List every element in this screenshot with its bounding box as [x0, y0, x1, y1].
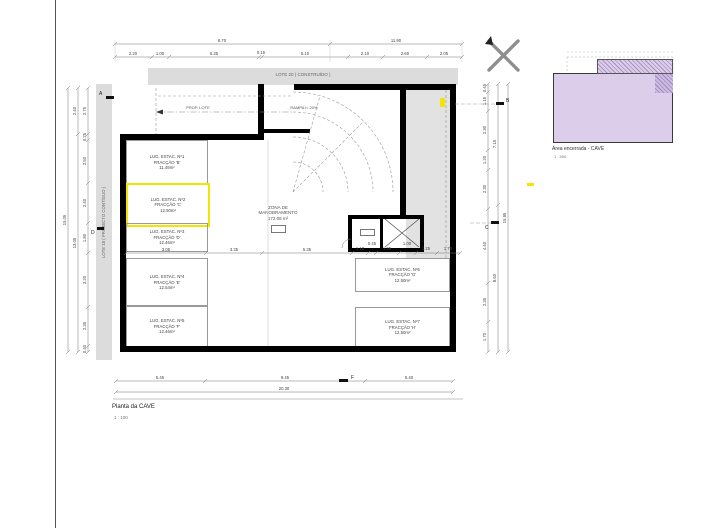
inset-ramp-strip [597, 59, 673, 74]
svg-text:1.00: 1.00 [156, 51, 165, 56]
svg-text:4.40: 4.40 [482, 241, 487, 250]
svg-text:2.40: 2.40 [72, 106, 77, 115]
svg-text:1.35: 1.35 [383, 246, 392, 251]
svg-text:1.15: 1.15 [482, 96, 487, 105]
svg-text:1.20: 1.20 [482, 155, 487, 164]
svg-text:3.05: 3.05 [162, 247, 171, 252]
svg-text:0.45: 0.45 [368, 241, 377, 246]
svg-text:8.60: 8.60 [492, 273, 497, 282]
svg-text:2.10: 2.10 [361, 51, 370, 56]
svg-text:2.30: 2.30 [482, 184, 487, 193]
svg-text:1.70: 1.70 [482, 332, 487, 341]
section-marker-f [339, 379, 348, 382]
plan-scale: 1 : 100 [114, 415, 128, 420]
drawing-sheet: LOTE 20 ( CONSTRUÍDO ) LOTE 18 ( PROJECT… [0, 0, 705, 528]
svg-text:2.20: 2.20 [129, 51, 138, 56]
section-marker-a [106, 96, 114, 99]
svg-text:20.30: 20.30 [279, 386, 290, 391]
section-marker-b [496, 102, 504, 105]
svg-text:2.35: 2.35 [482, 297, 487, 306]
section-letter-f: F [351, 375, 354, 381]
svg-text:2.50: 2.50 [82, 156, 87, 165]
svg-text:15.05: 15.05 [62, 214, 67, 225]
svg-text:3.35: 3.35 [230, 247, 239, 252]
inset-title: Área encerrada - CAVE [552, 146, 604, 152]
door-arc [342, 239, 351, 248]
svg-text:0.25: 0.25 [82, 132, 87, 141]
section-letter-b: B [506, 98, 509, 104]
svg-text:5.10: 5.10 [301, 51, 310, 56]
svg-text:1.80: 1.80 [82, 233, 87, 242]
svg-text:7.15: 7.15 [492, 139, 497, 148]
section-letter-d: D [91, 230, 95, 236]
plan-title: Planta da CAVE [112, 404, 155, 411]
svg-text:5.35: 5.35 [210, 51, 219, 56]
svg-text:1.70: 1.70 [444, 246, 453, 251]
svg-text:5.45: 5.45 [156, 375, 165, 380]
section-letter-a: A [99, 91, 102, 97]
ramp-centerline [156, 110, 293, 115]
svg-text:2.30: 2.30 [482, 125, 487, 134]
section-letter-c: C [485, 225, 489, 231]
svg-text:1.25: 1.25 [422, 246, 431, 251]
svg-text:11.90: 11.90 [391, 38, 402, 43]
svg-text:0.15: 0.15 [257, 50, 266, 55]
svg-text:13.05: 13.05 [72, 237, 77, 248]
svg-text:2.40: 2.40 [82, 198, 87, 207]
svg-text:5.40: 5.40 [405, 375, 414, 380]
svg-text:8.70: 8.70 [218, 38, 227, 43]
section-marker-d [97, 227, 104, 230]
svg-text:0.45: 0.45 [482, 83, 487, 92]
svg-text:3.20: 3.20 [82, 275, 87, 284]
svg-text:2.75: 2.75 [82, 106, 87, 115]
svg-text:9.45: 9.45 [281, 375, 290, 380]
svg-text:2.35: 2.35 [82, 321, 87, 330]
dimension-texts: 8.7011.90 2.201.00 5.350.15 5.102.10 2.6… [62, 38, 507, 391]
svg-text:1.00: 1.00 [403, 241, 412, 246]
svg-text:5.35: 5.35 [303, 247, 312, 252]
svg-text:2.60: 2.60 [401, 51, 410, 56]
svg-text:0.40: 0.40 [82, 344, 87, 353]
dimension-lines [66, 40, 510, 394]
section-marker-c [491, 221, 499, 224]
svg-text:1.10: 1.10 [356, 246, 365, 251]
svg-text:2.05: 2.05 [440, 51, 449, 56]
svg-text:15.95: 15.95 [502, 212, 507, 223]
inset-hatch-right [655, 74, 673, 93]
inset-scale: 1 : 500 [554, 155, 566, 160]
north-arrow-icon [485, 36, 518, 70]
